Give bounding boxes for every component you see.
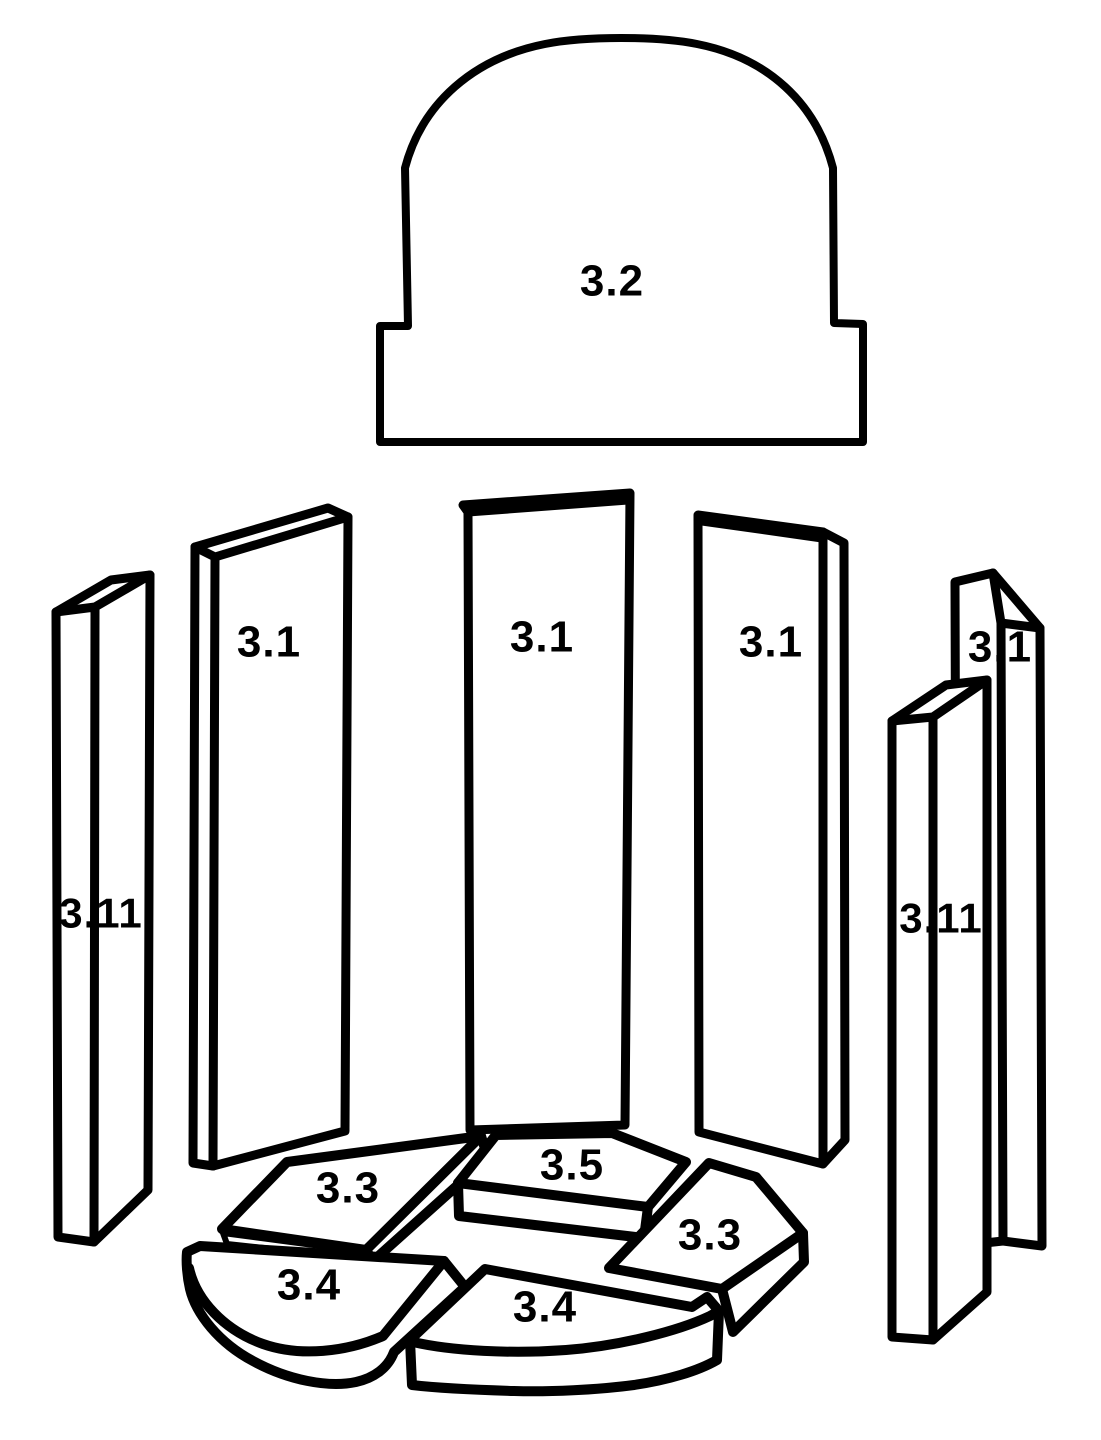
exploded-parts-diagram: 3.2 3.11 3.1 3.1 3.1 (0, 0, 1101, 1440)
part-top-arch-stone: 3.2 (380, 38, 863, 442)
part-label: 3.3 (678, 1211, 742, 1260)
part-side-panel-right: 3.1 (698, 515, 845, 1164)
part-side-panel-left: 3.1 (193, 508, 348, 1166)
part-label: 3.4 (513, 1283, 577, 1332)
part-label: 3.2 (580, 257, 644, 306)
part-label: 3.5 (540, 1141, 604, 1190)
part-label: 3.11 (899, 895, 982, 942)
strip-right-outline (892, 680, 987, 1340)
diagram-canvas: 3.2 3.11 3.1 3.1 3.1 (0, 0, 1101, 1440)
part-back-panel-center: 3.1 (463, 493, 630, 1130)
part-label: 3.1 (237, 618, 301, 667)
part-label: 3.1 (510, 613, 574, 662)
part-strip-right: 3.11 (892, 680, 987, 1340)
top-arch-outline (380, 38, 863, 442)
part-label: 3.1 (968, 623, 1032, 672)
part-label: 3.4 (277, 1261, 341, 1310)
part-strip-far-left: 3.11 (56, 575, 150, 1242)
part-label: 3.3 (316, 1164, 380, 1213)
back-panel-center-outline (463, 493, 630, 1130)
part-label: 3.11 (59, 890, 142, 937)
part-label: 3.1 (739, 618, 803, 667)
